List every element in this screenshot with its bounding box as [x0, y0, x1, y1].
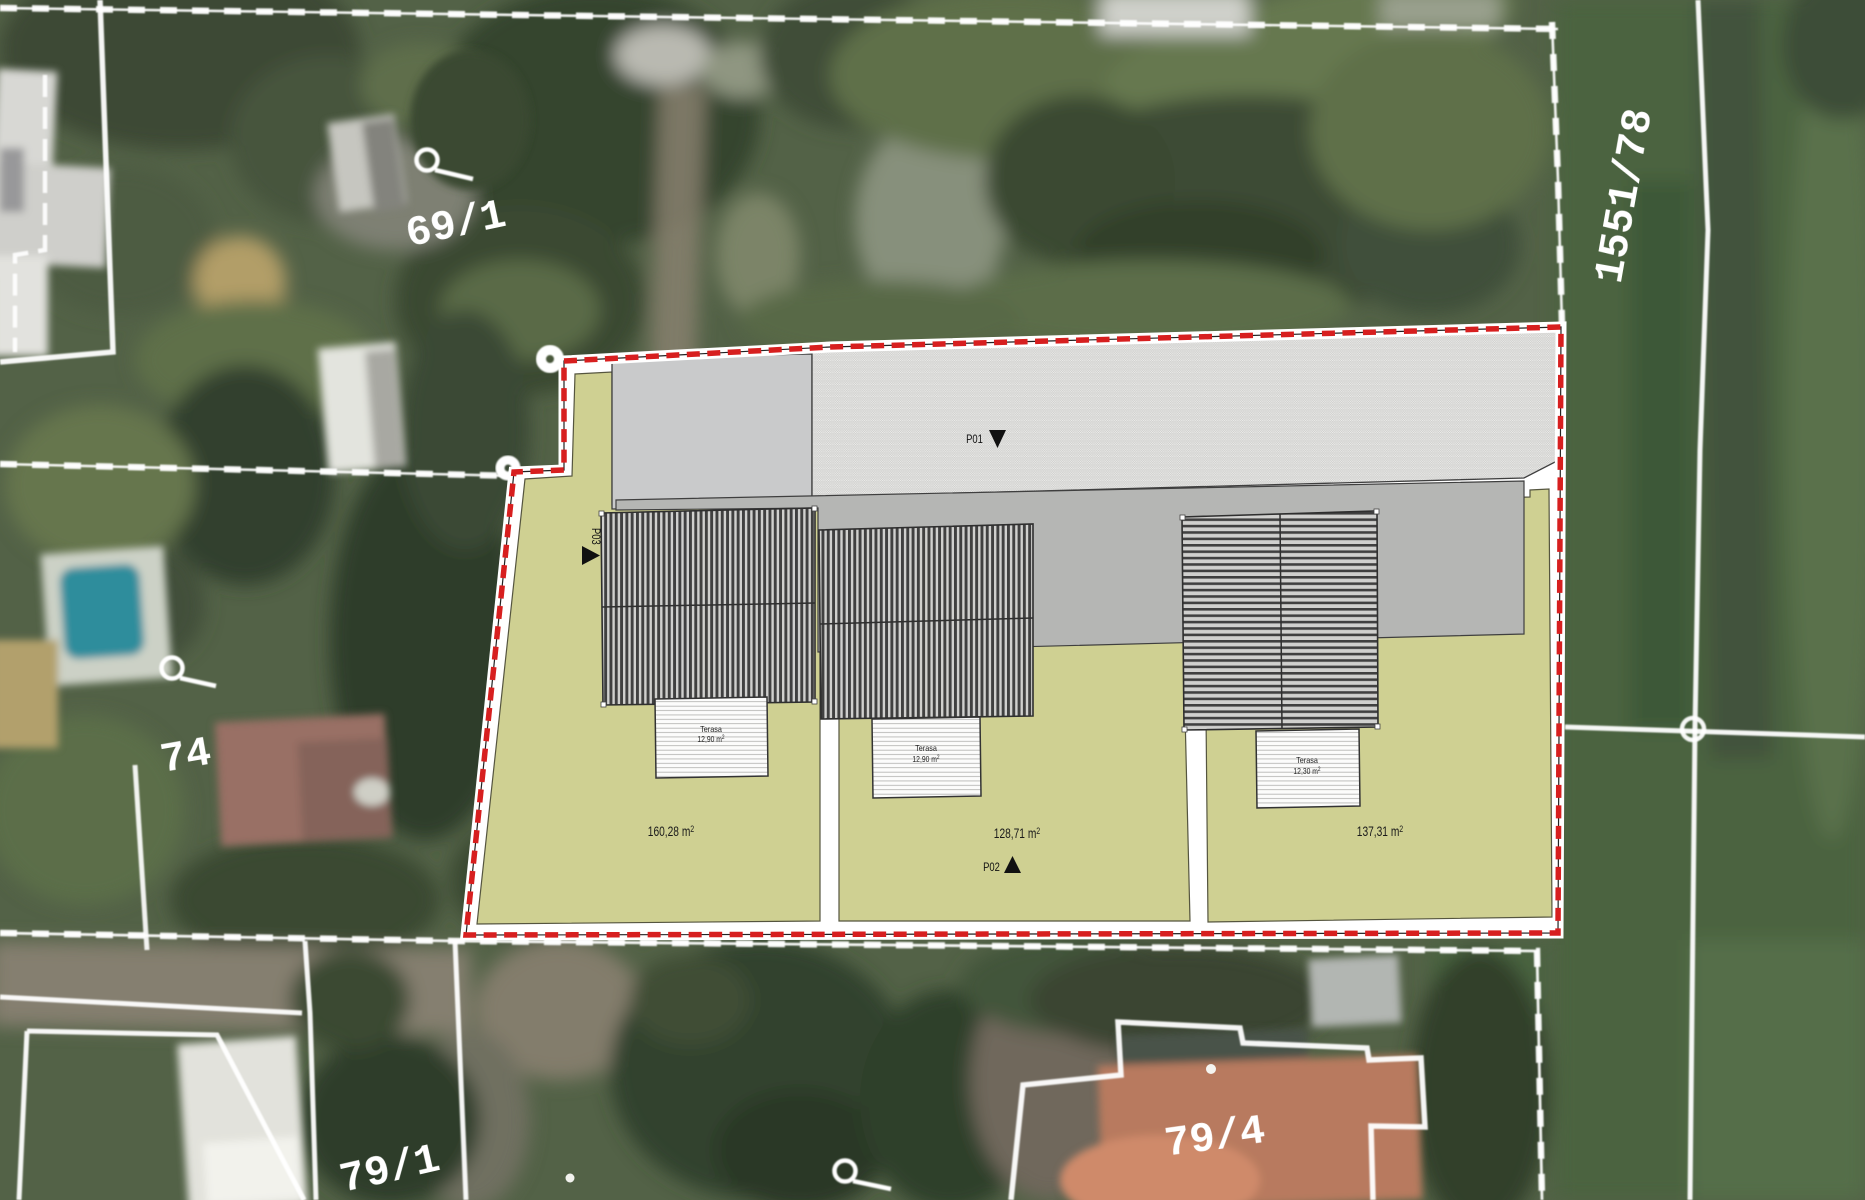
- svg-text:Terasa: Terasa: [915, 743, 937, 753]
- svg-text:Terasa: Terasa: [700, 724, 722, 734]
- svg-text:12,90 m2: 12,90 m2: [912, 754, 939, 764]
- svg-text:128,71 m2: 128,71 m2: [994, 825, 1041, 842]
- svg-text:12,30 m2: 12,30 m2: [1293, 766, 1320, 776]
- svg-text:74: 74: [157, 729, 215, 785]
- svg-text:P01: P01: [966, 433, 983, 446]
- svg-text:12,90 m2: 12,90 m2: [697, 734, 724, 744]
- svg-text:P02: P02: [983, 861, 1000, 874]
- svg-text:160,28 m2: 160,28 m2: [648, 823, 695, 840]
- svg-text:137,31 m2: 137,31 m2: [1357, 823, 1404, 840]
- svg-text:P03: P03: [589, 528, 602, 545]
- svg-text:Terasa: Terasa: [1296, 755, 1318, 765]
